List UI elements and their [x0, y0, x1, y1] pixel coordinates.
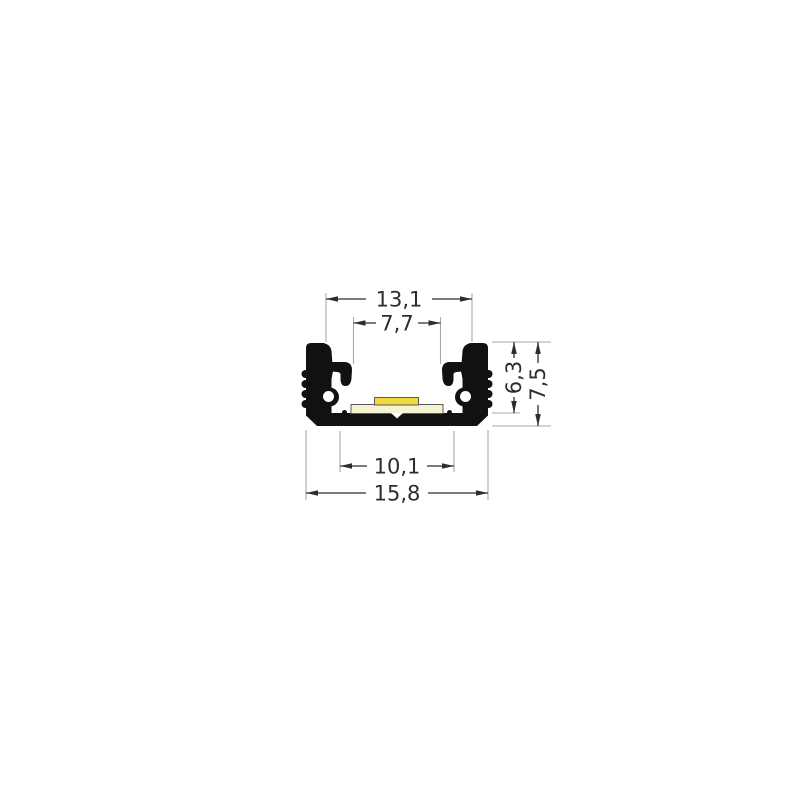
- led-chip: [375, 398, 419, 406]
- arrow-opening-width-left: [354, 320, 366, 326]
- profile-right-grip-tooth: [485, 400, 493, 408]
- arrow-total-height-top: [535, 342, 541, 354]
- floor-bump-right: [447, 410, 452, 415]
- arrow-total-width-right: [476, 490, 488, 496]
- dim-label-top-width: 13,1: [376, 288, 423, 312]
- right-screw-channel-gap: [453, 404, 459, 410]
- profile-right-grip-tooth: [485, 390, 493, 398]
- dimension-arrowheads: [306, 296, 541, 496]
- left-screw-channel-gap: [335, 404, 341, 410]
- profile-left-grip-tooth: [302, 380, 310, 388]
- dim-label-opening-width: 7,7: [380, 312, 413, 336]
- dim-label-total-height: 7,5: [526, 367, 550, 400]
- led-pcb: [351, 405, 443, 414]
- dim-label-total-width: 15,8: [374, 482, 421, 506]
- profile-left-grip-tooth: [302, 370, 310, 378]
- left-screw-channel-void: [323, 391, 334, 402]
- profile-left-grip-tooth: [302, 390, 310, 398]
- arrow-inner-bottom-width-right: [442, 463, 454, 469]
- arrow-inner-bottom-width-left: [340, 463, 352, 469]
- technical-drawing-canvas: 13,1 7,7 6,3 7,5 10,1 15,8: [0, 0, 800, 800]
- arrow-inner-height-bottom: [511, 401, 517, 413]
- dimension-lines: [306, 299, 538, 493]
- dim-label-inner-bottom-width: 10,1: [374, 455, 421, 479]
- arrow-total-width-left: [306, 490, 318, 496]
- dim-label-inner-height: 6,3: [502, 361, 526, 394]
- profile-right-grip-tooth: [485, 370, 493, 378]
- floor-bump-left: [342, 410, 347, 415]
- arrow-total-height-bottom: [535, 414, 541, 426]
- drawing-page: 13,1 7,7 6,3 7,5 10,1 15,8: [0, 0, 800, 800]
- arrow-top-width-right: [460, 296, 472, 302]
- profile-left-grip-tooth: [302, 400, 310, 408]
- right-screw-channel-void: [460, 391, 471, 402]
- arrow-opening-width-right: [429, 320, 441, 326]
- profile-left-clip-hook: [331, 362, 352, 386]
- arrow-top-width-left: [326, 296, 338, 302]
- profile-right-clip-hook: [442, 362, 463, 386]
- arrow-inner-height-top: [511, 342, 517, 354]
- profile-right-grip-tooth: [485, 380, 493, 388]
